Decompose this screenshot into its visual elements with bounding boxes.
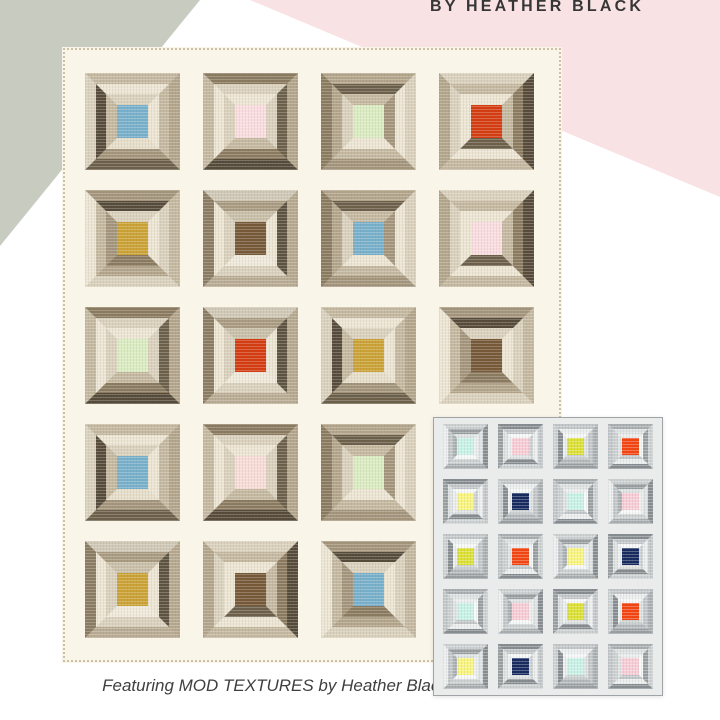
block-center-square [235, 573, 266, 606]
quilt-block [498, 589, 543, 634]
log-cabin-ring [553, 424, 598, 469]
block-center-square [353, 573, 384, 606]
log-cabin-ring [203, 424, 298, 521]
log-cabin-ring [553, 589, 598, 634]
quilt-block [203, 307, 298, 404]
quilt-block [439, 307, 534, 404]
block-center-square [622, 493, 639, 510]
log-cabin-ring [443, 479, 488, 524]
block-center-square [512, 548, 529, 565]
log-cabin-ring [563, 544, 588, 569]
log-cabin-ring [214, 435, 287, 510]
log-cabin-ring [450, 318, 523, 393]
log-cabin-ring [342, 445, 395, 500]
log-cabin-ring [508, 599, 533, 624]
log-cabin-ring [613, 429, 648, 464]
quilt-block [553, 424, 598, 469]
quilt-block [321, 190, 416, 287]
quilt-block [553, 534, 598, 579]
block-center-square [567, 603, 584, 620]
block-center-square [117, 573, 148, 606]
block-center-square [567, 548, 584, 565]
log-cabin-ring [460, 94, 513, 149]
block-center-square [471, 105, 502, 138]
block-center-square [117, 105, 148, 138]
block-center-square [622, 658, 639, 675]
log-cabin-ring [321, 541, 416, 638]
log-cabin-ring [613, 594, 648, 629]
block-center-square [457, 658, 474, 675]
block-center-square [457, 438, 474, 455]
quilt-block [443, 589, 488, 634]
log-cabin-ring [439, 73, 534, 170]
log-cabin-ring [618, 489, 643, 514]
log-cabin-ring [453, 489, 478, 514]
log-cabin-ring [85, 307, 180, 404]
log-cabin-ring [460, 328, 513, 383]
log-cabin-ring [618, 434, 643, 459]
block-center-square [512, 438, 529, 455]
log-cabin-ring [608, 424, 653, 469]
log-cabin-ring [608, 534, 653, 579]
caption-text: Featuring MOD TEXTURES by Heather Black [75, 676, 475, 696]
quilt-block [321, 73, 416, 170]
log-cabin-ring [203, 541, 298, 638]
log-cabin-ring [332, 84, 405, 159]
quilt-block [443, 534, 488, 579]
block-center-square [622, 603, 639, 620]
quilt-block [498, 479, 543, 524]
log-cabin-ring [448, 649, 483, 684]
log-cabin-ring [503, 539, 538, 574]
block-center-square [567, 438, 584, 455]
quilt-block [443, 644, 488, 689]
log-cabin-ring [608, 644, 653, 689]
quilt-block [321, 541, 416, 638]
block-center-square [117, 339, 148, 372]
quilt-block [553, 644, 598, 689]
log-cabin-ring [224, 445, 277, 500]
inset-quilt-grid [434, 418, 662, 695]
log-cabin-ring [503, 484, 538, 519]
log-cabin-ring [342, 562, 395, 617]
log-cabin-ring [96, 201, 169, 276]
log-cabin-ring [443, 589, 488, 634]
log-cabin-ring [448, 594, 483, 629]
log-cabin-ring [498, 589, 543, 634]
block-center-square [567, 493, 584, 510]
block-center-square [471, 339, 502, 372]
log-cabin-ring [503, 429, 538, 464]
log-cabin-ring [443, 644, 488, 689]
log-cabin-ring [203, 307, 298, 404]
log-cabin-ring [450, 84, 523, 159]
quilt-block [608, 534, 653, 579]
log-cabin-ring [96, 318, 169, 393]
log-cabin-ring [321, 424, 416, 521]
log-cabin-ring [563, 489, 588, 514]
log-cabin-ring [443, 534, 488, 579]
quilt-block [498, 534, 543, 579]
quilt-block [608, 424, 653, 469]
log-cabin-ring [332, 552, 405, 627]
log-cabin-ring [498, 644, 543, 689]
log-cabin-ring [608, 479, 653, 524]
block-center-square [235, 456, 266, 489]
log-cabin-ring [214, 201, 287, 276]
block-center-square [457, 548, 474, 565]
log-cabin-ring [439, 307, 534, 404]
log-cabin-ring [439, 190, 534, 287]
block-center-square [353, 339, 384, 372]
log-cabin-ring [321, 190, 416, 287]
log-cabin-ring [613, 539, 648, 574]
log-cabin-ring [508, 544, 533, 569]
log-cabin-ring [558, 429, 593, 464]
log-cabin-ring [503, 594, 538, 629]
block-center-square [512, 493, 529, 510]
log-cabin-ring [448, 539, 483, 574]
quilt-block [203, 541, 298, 638]
quilt-block [608, 644, 653, 689]
quilt-block [203, 73, 298, 170]
quilt-block [608, 589, 653, 634]
log-cabin-ring [553, 644, 598, 689]
log-cabin-ring [553, 534, 598, 579]
quilt-block [85, 73, 180, 170]
block-center-square [117, 222, 148, 255]
log-cabin-ring [214, 318, 287, 393]
quilt-block [553, 589, 598, 634]
quilt-block [498, 644, 543, 689]
quilt-block [439, 73, 534, 170]
quilt-block [553, 479, 598, 524]
quilt-block [321, 307, 416, 404]
log-cabin-ring [508, 489, 533, 514]
quilt-block [443, 479, 488, 524]
log-cabin-ring [608, 589, 653, 634]
log-cabin-ring [321, 73, 416, 170]
quilt-block [85, 424, 180, 521]
log-cabin-ring [498, 534, 543, 579]
log-cabin-ring [508, 434, 533, 459]
log-cabin-ring [453, 599, 478, 624]
quilt-block [498, 424, 543, 469]
block-center-square [512, 603, 529, 620]
log-cabin-ring [224, 211, 277, 266]
inset-quilt-image [433, 417, 663, 696]
quilt-block [321, 424, 416, 521]
quilt-block [85, 307, 180, 404]
log-cabin-ring [450, 201, 523, 276]
log-cabin-ring [106, 445, 159, 500]
log-cabin-ring [498, 424, 543, 469]
quilt-block [85, 190, 180, 287]
log-cabin-ring [613, 649, 648, 684]
log-cabin-ring [508, 654, 533, 679]
log-cabin-ring [342, 328, 395, 383]
block-center-square [512, 658, 529, 675]
log-cabin-ring [618, 654, 643, 679]
log-cabin-ring [106, 328, 159, 383]
log-cabin-ring [618, 599, 643, 624]
quilt-block [203, 424, 298, 521]
block-center-square [353, 456, 384, 489]
log-cabin-ring [503, 649, 538, 684]
block-center-square [353, 105, 384, 138]
quilt-block [443, 424, 488, 469]
quilt-block [203, 190, 298, 287]
quilt-block [608, 479, 653, 524]
block-center-square [235, 339, 266, 372]
log-cabin-ring [214, 552, 287, 627]
log-cabin-ring [558, 594, 593, 629]
log-cabin-ring [563, 654, 588, 679]
log-cabin-ring [203, 190, 298, 287]
log-cabin-ring [332, 201, 405, 276]
block-center-square [622, 548, 639, 565]
log-cabin-ring [448, 484, 483, 519]
log-cabin-ring [332, 318, 405, 393]
log-cabin-ring [498, 479, 543, 524]
log-cabin-ring [553, 479, 598, 524]
log-cabin-ring [214, 84, 287, 159]
log-cabin-ring [342, 94, 395, 149]
block-center-square [471, 222, 502, 255]
log-cabin-ring [106, 562, 159, 617]
quilt-block [439, 190, 534, 287]
block-center-square [622, 438, 639, 455]
log-cabin-ring [106, 94, 159, 149]
log-cabin-ring [618, 544, 643, 569]
block-center-square [235, 105, 266, 138]
log-cabin-ring [96, 84, 169, 159]
log-cabin-ring [563, 599, 588, 624]
log-cabin-ring [224, 94, 277, 149]
log-cabin-ring [224, 562, 277, 617]
log-cabin-ring [332, 435, 405, 510]
block-center-square [117, 456, 148, 489]
log-cabin-ring [558, 649, 593, 684]
log-cabin-ring [96, 552, 169, 627]
log-cabin-ring [96, 435, 169, 510]
byline-title: BY HEATHER BLACK [430, 0, 644, 15]
block-center-square [353, 222, 384, 255]
block-center-square [457, 493, 474, 510]
log-cabin-ring [203, 73, 298, 170]
log-cabin-ring [85, 190, 180, 287]
log-cabin-ring [342, 211, 395, 266]
log-cabin-ring [448, 429, 483, 464]
log-cabin-ring [613, 484, 648, 519]
log-cabin-ring [453, 654, 478, 679]
log-cabin-ring [106, 211, 159, 266]
block-center-square [567, 658, 584, 675]
block-center-square [457, 603, 474, 620]
log-cabin-ring [453, 434, 478, 459]
log-cabin-ring [563, 434, 588, 459]
log-cabin-ring [85, 541, 180, 638]
log-cabin-ring [558, 484, 593, 519]
log-cabin-ring [453, 544, 478, 569]
log-cabin-ring [85, 73, 180, 170]
log-cabin-ring [460, 211, 513, 266]
log-cabin-ring [321, 307, 416, 404]
log-cabin-ring [85, 424, 180, 521]
log-cabin-ring [224, 328, 277, 383]
quilt-block [85, 541, 180, 638]
block-center-square [235, 222, 266, 255]
log-cabin-ring [558, 539, 593, 574]
log-cabin-ring [443, 424, 488, 469]
